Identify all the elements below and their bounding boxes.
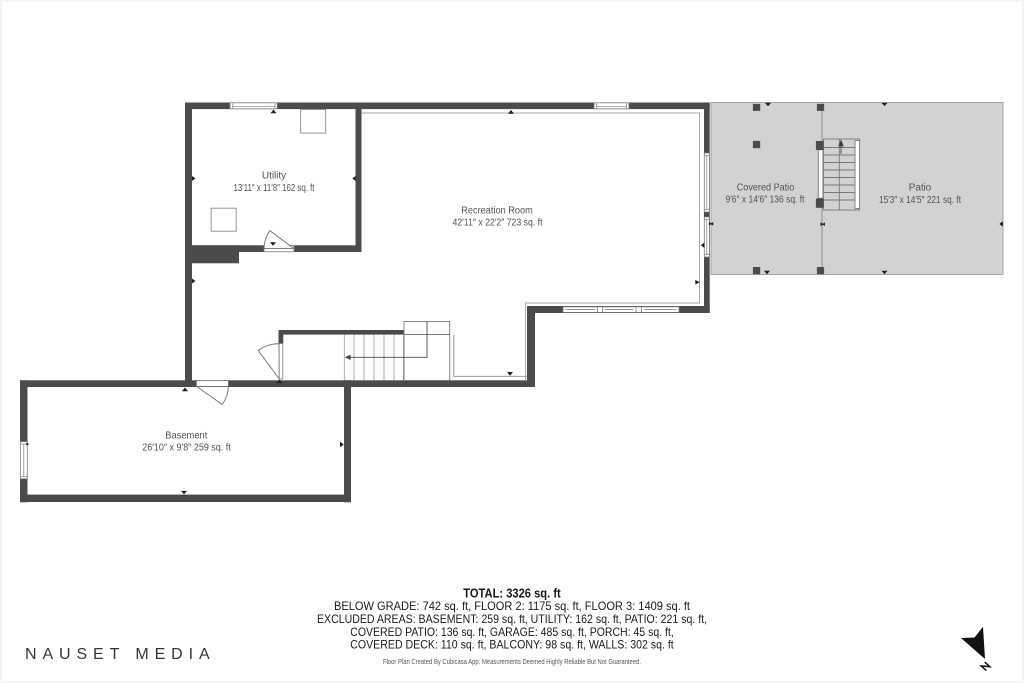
svg-text:NAUSET MEDIA: NAUSET MEDIA <box>25 646 216 663</box>
svg-text:Covered Patio: Covered Patio <box>737 183 795 194</box>
svg-text:Floor Plan Created By Cubicasa: Floor Plan Created By Cubicasa App. Meas… <box>383 657 641 666</box>
svg-text:13′11″ x 11′8″ 162 sq. ft: 13′11″ x 11′8″ 162 sq. ft <box>234 183 315 194</box>
svg-text:Basement: Basement <box>165 430 207 441</box>
svg-text:Patio: Patio <box>909 183 932 194</box>
svg-text:BELOW GRADE: 742 sq. ft, FLOOR: BELOW GRADE: 742 sq. ft, FLOOR 2: 1175 s… <box>334 599 691 613</box>
svg-text:COVERED DECK: 110 sq. ft, BALC: COVERED DECK: 110 sq. ft, BALCONY: 98 sq… <box>350 638 674 652</box>
svg-text:9′6″ x 14′6″ 136 sq. ft: 9′6″ x 14′6″ 136 sq. ft <box>726 195 805 206</box>
svg-text:42′11″ x 22′2″ 723 sq. ft: 42′11″ x 22′2″ 723 sq. ft <box>453 218 543 229</box>
svg-text:26′10″ x 9′8″ 259 sq. ft: 26′10″ x 9′8″ 259 sq. ft <box>142 442 231 453</box>
svg-text:TOTAL: 3326 sq. ft: TOTAL: 3326 sq. ft <box>463 586 561 600</box>
svg-text:Recreation Room: Recreation Room <box>461 205 533 216</box>
svg-text:Utility: Utility <box>262 171 286 182</box>
svg-text:15′3″ x 14′5″ 221 sq. ft: 15′3″ x 14′5″ 221 sq. ft <box>879 195 961 206</box>
